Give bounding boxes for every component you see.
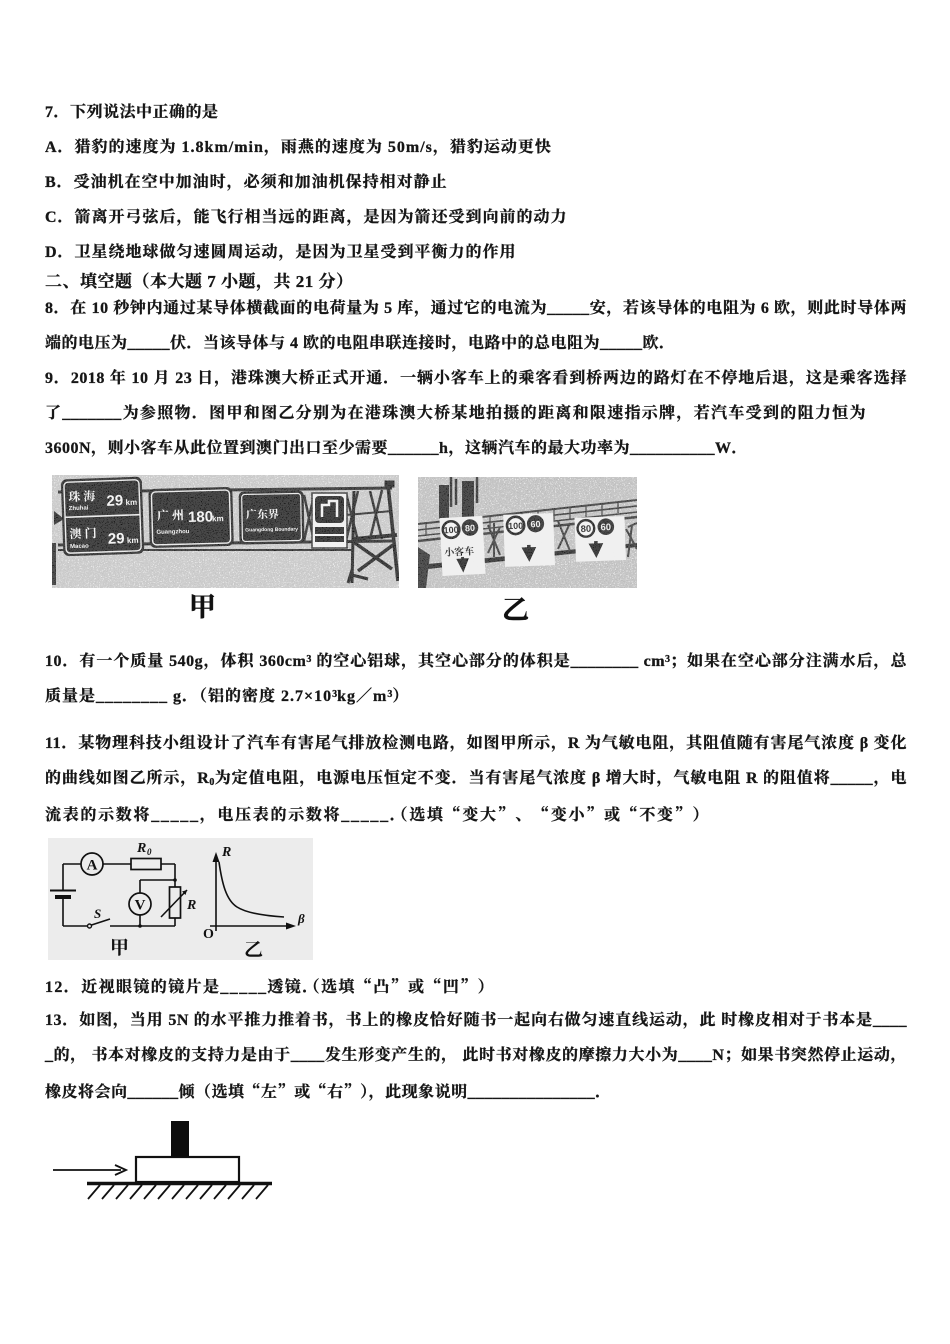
svg-text:R: R — [136, 841, 146, 856]
svg-text:A: A — [87, 858, 98, 874]
svg-text:β: β — [297, 911, 305, 926]
svg-text:O: O — [203, 927, 214, 942]
svg-text:R: R — [186, 898, 196, 913]
svg-text:R: R — [221, 845, 231, 860]
svg-text:甲: 甲 — [110, 933, 129, 960]
svg-text:S: S — [94, 906, 101, 921]
svg-text:0: 0 — [147, 847, 152, 857]
svg-text:乙: 乙 — [244, 935, 263, 960]
svg-text:V: V — [135, 898, 146, 914]
